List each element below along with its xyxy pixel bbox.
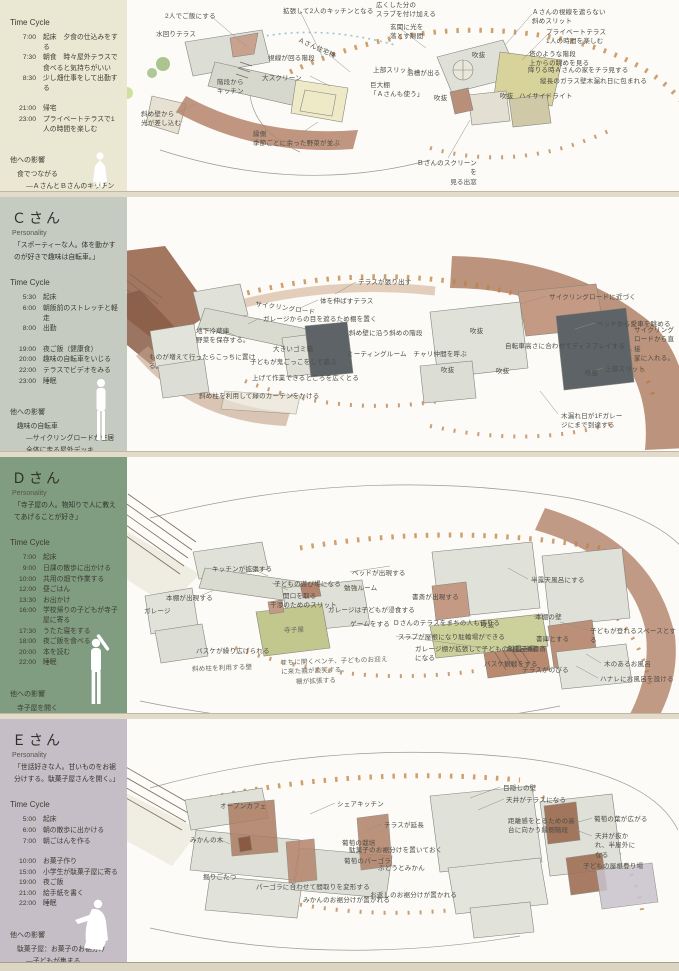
schedule-time: 9:00: [10, 564, 36, 575]
schedule-row: 7:00起床 夕食の仕込みをする: [10, 33, 119, 53]
schedule-time: 5:00: [10, 815, 36, 826]
sidebar-resident-d: Ｄさん Personality 「寺子屋の人。物知りで人に教えてあげることが好き…: [0, 456, 127, 713]
schedule-time: 8:30: [10, 74, 36, 94]
schedule-time: 20:00: [10, 355, 36, 366]
schedule-row: 5:00起床: [10, 815, 119, 826]
schedule-list: 5:30起床6:00朝飯前のストレッチと軽走8:00出勤19:00夜ご飯（健康食…: [10, 293, 119, 387]
schedule-row: 10:00お菓子作り: [10, 857, 119, 868]
schedule-row: [10, 847, 119, 857]
plan-annotation: Ｂさんのスクリーンを 見る出窓: [413, 159, 477, 187]
personality-text: 「寺子屋の人。物知りで人に教えてあげることが好き」: [14, 500, 117, 524]
resident-name: Ｃさん: [12, 208, 119, 228]
schedule-time: 15:00: [10, 868, 36, 879]
plan-annotation: スラブが屋根になり駐輪場ができる: [398, 633, 505, 642]
schedule-activity: プライベートテラスで1人の時間を楽しむ: [43, 115, 119, 135]
plan-annotation: 棚が拡張する: [296, 676, 337, 687]
plan-annotation: ゲームをする: [350, 620, 390, 629]
plan-annotation: 玄関に光を 落とす隙間: [390, 23, 424, 42]
page-bottom-strip: [0, 962, 679, 971]
plan-annotation: シェアキッチン: [337, 800, 384, 809]
schedule-row: 15:00小学生が駄菓子屋に寄る: [10, 868, 119, 879]
plan-annotation: 縁側 季節ごとに余った野菜が並ぶ: [253, 130, 340, 149]
section-resident-d: キッチンが拡張するベッドが出現する子どもの遊び場になる勉強ルーム開口を取る干渉の…: [0, 456, 679, 713]
plan-annotation: 縦長のガラス壁木漏れ日に包まれる: [540, 77, 647, 86]
schedule-activity: 起床: [43, 293, 119, 304]
schedule-time: 23:00: [10, 115, 36, 135]
plan-annotation: 吹抜: [481, 621, 494, 630]
plan-annotation: ハイサイドライト: [519, 92, 572, 101]
plan-annotation: 水回りテラス: [156, 30, 196, 39]
schedule-time: 8:00: [10, 324, 36, 335]
plan-annotation: 勉強ルーム: [344, 584, 377, 593]
plan-annotation: 目隠しの壁: [503, 784, 537, 793]
section-divider: [0, 191, 679, 197]
plan-annotation: 上部スリット: [605, 365, 645, 374]
schedule-row: 19:00夜ご飯: [10, 878, 119, 889]
schedule-time: 7:00: [10, 33, 36, 53]
schedule-row: 16:00学校帰りの子どもが寺子屋に寄る: [10, 606, 119, 626]
schedule-time: [10, 847, 36, 857]
schedule-row: 13:30お出かけ: [10, 596, 119, 607]
plan-annotation: 距離感をとるための高 台に向かう縁側階段: [508, 817, 575, 836]
schedule-time: 21:00: [10, 104, 36, 115]
schedule-time: 10:00: [10, 575, 36, 586]
schedule-time: 19:00: [10, 878, 36, 889]
person-silhouette-standing: [90, 152, 110, 188]
plan-annotation: 寺子屋: [284, 626, 304, 636]
plan-annotation: 天井がテラスになる: [506, 796, 566, 805]
schedule-row: 7:30朝食 時々屋外テラスで食べると気持ちがいい: [10, 53, 119, 73]
schedule-list: 5:00起床6:00朝の散歩に出かける7:00朝ごはんを作る10:00お菓子作り…: [10, 815, 119, 909]
plan-annotation: 広くした分の スラブを付け加える: [376, 1, 436, 20]
schedule-activity: お出かけ: [43, 596, 119, 607]
plan-annotation: バスケが繰り広げられる: [196, 647, 270, 656]
schedule-list: 7:00起床 夕食の仕込みをする7:30朝食 時々屋外テラスで食べると気持ちがい…: [10, 33, 119, 135]
plan-annotation: 掘りごたつ: [203, 873, 237, 882]
plan-annotation: テラスが延長: [384, 821, 424, 830]
schedule-time: 23:00: [10, 377, 36, 388]
schedule-activity: 起床: [43, 553, 119, 564]
section-divider: [0, 451, 679, 457]
schedule-time: 22:00: [10, 658, 36, 669]
schedule-time: 6:00: [10, 304, 36, 324]
plan-annotation: サイクリングロードに近づく: [549, 293, 636, 302]
person-silhouette-waving: [84, 632, 112, 706]
schedule-activity: 帰宅: [43, 104, 119, 115]
schedule-activity: [43, 94, 119, 104]
plan-annotation: 階段から キッチン: [217, 78, 244, 97]
plan-annotation: 吹抜: [434, 94, 447, 103]
schedule-row: 9:00日課の散歩に出かける: [10, 564, 119, 575]
plan-annotation: 木漏れ日が1Fガレー ジにまで到達する: [561, 412, 623, 431]
plan-annotation: 吹抜: [585, 369, 598, 378]
plan-annotation: 駄菓子のお裾分けを置いておく: [349, 846, 442, 855]
plan-annotation: パーゴラに合わせて間取りを変形する: [256, 883, 370, 892]
personality-label: Personality: [12, 490, 119, 497]
plan-annotation: 葡萄の葉が広がる: [594, 815, 648, 824]
schedule-activity: 夜ご飯: [43, 878, 119, 889]
plan-annotation: 吹抜: [441, 366, 454, 375]
personality-text: 「スポーティーな人。体を動かすのが好きで趣味は自転車。」: [14, 240, 117, 264]
section-divider: [0, 713, 679, 719]
plan-annotation: ガレージからの目を遮るため棚を置く: [263, 315, 377, 324]
schedule-row: 20:00趣味の自転車をいじる: [10, 355, 119, 366]
plan-annotation: テラスがのびる: [522, 666, 569, 675]
person-silhouette-standing-man: [91, 378, 111, 444]
section-resident-c: テラスが張り出す体を伸ばすテラスサイクリングロードガレージからの目を遮るため棚を…: [0, 196, 679, 451]
schedule-time: 22:00: [10, 899, 36, 910]
plan-annotation: 木のあるお風呂: [604, 660, 651, 669]
sidebar-resident-b: Time Cycle 7:00起床 夕食の仕込みをする7:30朝食 時々屋外テラ…: [0, 0, 127, 191]
sidebar-resident-e: Ｅさん Personality 「世話好きな人。甘いものをお裾分けする。駄菓子屋…: [0, 718, 127, 962]
time-cycle-label: Time Cycle: [10, 538, 119, 547]
plan-annotation: 子どもが登れるスペースとする: [590, 627, 679, 646]
schedule-row: [10, 94, 119, 104]
schedule-time: 16:00: [10, 606, 36, 626]
plan-annotation: 降りる時Ａさんの家をチラ見する: [528, 66, 629, 75]
schedule-row: 10:00共用の畑で作業する: [10, 575, 119, 586]
schedule-time: 6:00: [10, 826, 36, 837]
resident-name: Ｄさん: [12, 468, 119, 488]
schedule-activity: [43, 335, 119, 345]
plan-annotation: ものが増えて行ったらこっちに置け る。: [149, 353, 255, 372]
plan-annotation: 自転車高さに合わせてディスプレイする: [505, 342, 625, 351]
plan-annotation: プライベートテラス 1人の時間を楽しむ: [546, 28, 606, 47]
plan-annotation: 天井が抜かれ、半屋外になる: [595, 832, 639, 860]
resident-name: Ｅさん: [12, 730, 119, 750]
schedule-activity: お菓子作り: [43, 857, 119, 868]
plan-annotation: 大きいゴミ箱: [273, 345, 313, 354]
schedule-row: 8:30少し畑仕事をして出勤する: [10, 74, 119, 94]
schedule-time: 19:00: [10, 345, 36, 356]
plan-annotation: Ａさんの視線を遮らない 斜めスリット: [532, 8, 606, 27]
schedule-time: [10, 94, 36, 104]
schedule-row: 6:00朝の散歩に出かける: [10, 826, 119, 837]
plan-annotation: ミーティングルーム チャリ仲間を呼ぶ: [347, 350, 467, 359]
schedule-row: 5:30起床: [10, 293, 119, 304]
personality-label: Personality: [12, 230, 119, 237]
schedule-activity: 夜ご飯（健康食）: [43, 345, 119, 356]
schedule-time: 12:00: [10, 585, 36, 596]
plan-annotation: 2人でご飯にする: [165, 12, 216, 21]
schedule-activity: 朝飯前のストレッチと軽走: [43, 304, 119, 324]
plan-annotation: テラスが張り出す: [358, 278, 411, 287]
schedule-row: 8:00出勤: [10, 324, 119, 335]
plan-annotation: みかんの木: [190, 836, 224, 845]
plan-annotation: お風呂兼書斎: [506, 645, 546, 654]
schedule-time: [10, 335, 36, 345]
schedule-time: 21:00: [10, 889, 36, 900]
schedule-row: 21:00帰宅: [10, 104, 119, 115]
schedule-time: 7:30: [10, 53, 36, 73]
plan-annotation: 書庫とする: [536, 635, 569, 644]
schedule-activity: 起床: [43, 815, 119, 826]
plan-annotation: 斜め柱を利用して緑のカーテンをかける: [199, 392, 319, 401]
schedule-time: 7:00: [10, 837, 36, 848]
schedule-activity: 共用の畑で作業する: [43, 575, 119, 586]
schedule-activity: 起床 夕食の仕込みをする: [43, 33, 119, 53]
plan-annotation: 拡張して2人のキッチンとなる: [283, 7, 374, 16]
schedule-row: [10, 335, 119, 345]
schedule-activity: 趣味の自転車をいじる: [43, 355, 119, 366]
schedule-activity: テラスでビデオをみる: [43, 366, 119, 377]
section-resident-b: 2人でご飯にする拡張して2人のキッチンとなる水回りテラスＡさん住宅棟視線が回る階…: [0, 0, 679, 191]
plan-annotation: 吹抜: [500, 92, 513, 101]
plan-annotation: ガレージ: [144, 607, 171, 616]
schedule-row: 22:00テラスでビデオをみる: [10, 366, 119, 377]
plan-annotation: ぶどうとみかん: [378, 864, 425, 873]
schedule-time: 22:00: [10, 366, 36, 377]
schedule-activity: 少し畑仕事をして出勤する: [43, 74, 119, 94]
plan-annotation: 大スクリーン: [262, 74, 302, 83]
plan-annotation: サイクリング ロードから直接 家に入れる。: [634, 326, 679, 364]
sidebar-resident-c: Ｃさん Personality 「スポーティーな人。体を動かすのが好きで趣味は自…: [0, 196, 127, 451]
plan-annotation: 本棚の壁: [535, 613, 562, 622]
plan-annotation: オープンカフェ: [220, 802, 267, 811]
plan-annotation: 開口を取る: [283, 592, 317, 601]
person-silhouette-kneeling: [72, 898, 114, 956]
schedule-activity: [43, 847, 119, 857]
schedule-time: 13:30: [10, 596, 36, 607]
personality-text: 「世話好きな人。甘いものをお裾分けする。駄菓子屋さんを開く。」: [14, 762, 117, 786]
plan-annotation: キッチンが拡張する: [212, 565, 272, 574]
time-cycle-label: Time Cycle: [10, 278, 119, 287]
schedule-row: 19:00夜ご飯（健康食）: [10, 345, 119, 356]
plan-annotation: まちに開くベンチ、子どものお迎え に来た親が談笑する。: [281, 655, 388, 678]
plan-annotation: 子どもの遊び場になる: [274, 580, 341, 589]
plan-annotation: 体を伸ばすテラス: [320, 297, 373, 306]
time-cycle-label: Time Cycle: [10, 800, 119, 809]
schedule-row: 6:00朝飯前のストレッチと軽走: [10, 304, 119, 324]
time-cycle-label: Time Cycle: [10, 18, 119, 27]
plan-annotation: 吹抜: [496, 367, 509, 376]
presentation-board: 2人でご飯にする拡張して2人のキッチンとなる水回りテラスＡさん住宅棟視線が回る階…: [0, 0, 679, 971]
plan-annotation: 半露天風呂にする: [531, 576, 585, 585]
plan-annotation: 視線が回る階段: [268, 54, 315, 63]
schedule-activity: 朝ごはんを作る: [43, 837, 119, 848]
personality-label: Personality: [12, 752, 119, 759]
schedule-activity: 朝の散歩に出かける: [43, 826, 119, 837]
plan-annotation: 吹抜: [472, 51, 485, 60]
plan-annotation: お返しのお裾分けが置かれる: [370, 891, 457, 900]
plan-annotation: ハナレにお風呂を設ける: [600, 675, 674, 684]
schedule-time: 18:00: [10, 637, 36, 648]
schedule-activity: 朝食 時々屋外テラスで食べると気持ちがいい: [43, 53, 119, 73]
plan-annotation: 斜め壁から 光が差し込む: [141, 110, 181, 129]
plan-annotation: 上げて作業できるところを広くとる: [252, 374, 359, 383]
plan-annotation: 本棚が出現する: [166, 594, 213, 603]
section-resident-e: オープンカフェシェアキッチンテラスが延長みかんの木葡萄の栽培駄菓子のお裾分けを置…: [0, 718, 679, 962]
plan-annotation: ベッドが出現する: [352, 569, 406, 578]
plan-annotation: 斜め壁に沿う斜めの階段: [349, 329, 423, 338]
plan-annotation: 子どもの屋根登り場: [583, 862, 643, 871]
plan-annotation: 干渉のためのスリット: [270, 601, 337, 610]
schedule-row: 23:00プライベートテラスで1人の時間を楽しむ: [10, 115, 119, 135]
schedule-activity: 出勤: [43, 324, 119, 335]
schedule-row: 12:00昼ごはん: [10, 585, 119, 596]
schedule-row: 7:00朝ごはんを作る: [10, 837, 119, 848]
schedule-time: 5:30: [10, 293, 36, 304]
schedule-time: 20:00: [10, 648, 36, 659]
schedule-activity: 小学生が駄菓子屋に寄る: [43, 868, 119, 879]
plan-annotation: 吹抜: [470, 327, 483, 336]
plan-annotation: 書斎が出現する: [412, 593, 459, 602]
schedule-time: 7:00: [10, 553, 36, 564]
schedule-activity: 昼ごはん: [43, 585, 119, 596]
plan-annotation: 浴槽が出る: [407, 69, 441, 78]
plan-annotation: 巨大棚 「Ａさんも使う」: [370, 81, 424, 100]
plan-annotation: ガレージは子どもが浸食する: [328, 606, 415, 615]
schedule-row: 7:00起床: [10, 553, 119, 564]
plan-annotation: 子どもが鬼ごっこをして遊ぶ: [250, 358, 337, 367]
plan-annotation: 地下冷蔵庫 野菜を保存する。: [196, 327, 250, 346]
schedule-activity: 学校帰りの子どもが寺子屋に寄る: [43, 606, 119, 626]
schedule-time: 10:00: [10, 857, 36, 868]
schedule-time: 17:30: [10, 627, 36, 638]
schedule-activity: 日課の散歩に出かける: [43, 564, 119, 575]
